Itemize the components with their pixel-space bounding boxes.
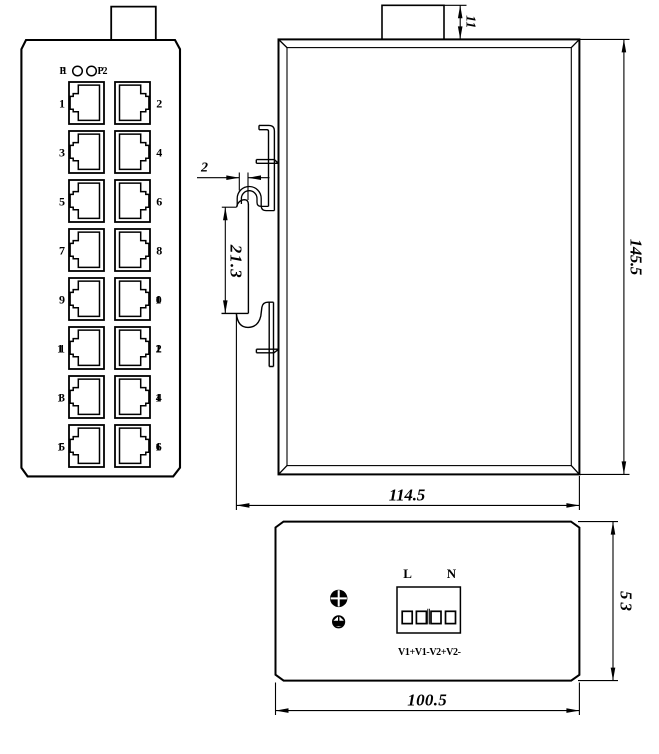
svg-text:7: 7 (59, 244, 65, 258)
svg-text:15: 15 (57, 440, 65, 454)
svg-text:145.5: 145.5 (627, 239, 646, 276)
svg-text:2: 2 (156, 97, 162, 111)
svg-text:114.5: 114.5 (389, 486, 426, 505)
svg-text:14: 14 (155, 391, 162, 405)
svg-text:8: 8 (156, 244, 162, 258)
svg-text:P1: P1 (60, 66, 68, 77)
svg-text:4: 4 (156, 146, 162, 160)
svg-text:L: L (403, 566, 412, 581)
svg-text:100.5: 100.5 (407, 691, 447, 710)
svg-text:5: 5 (59, 195, 65, 209)
svg-text:N: N (447, 566, 457, 581)
svg-text:13: 13 (57, 391, 65, 405)
svg-text:11: 11 (463, 15, 478, 28)
svg-text:9: 9 (59, 293, 65, 307)
svg-text:11: 11 (57, 342, 65, 356)
svg-text:2: 2 (200, 161, 208, 176)
svg-text:6: 6 (156, 195, 162, 209)
svg-text:1: 1 (59, 97, 65, 111)
svg-text:P2: P2 (98, 66, 108, 77)
svg-text:V1+V1-V2+V2-: V1+V1-V2+V2- (398, 647, 461, 658)
svg-text:21.3: 21.3 (227, 244, 246, 279)
svg-text:12: 12 (155, 342, 162, 356)
svg-text:3: 3 (59, 146, 65, 160)
svg-text:10: 10 (155, 293, 162, 307)
svg-text:16: 16 (155, 440, 162, 454)
